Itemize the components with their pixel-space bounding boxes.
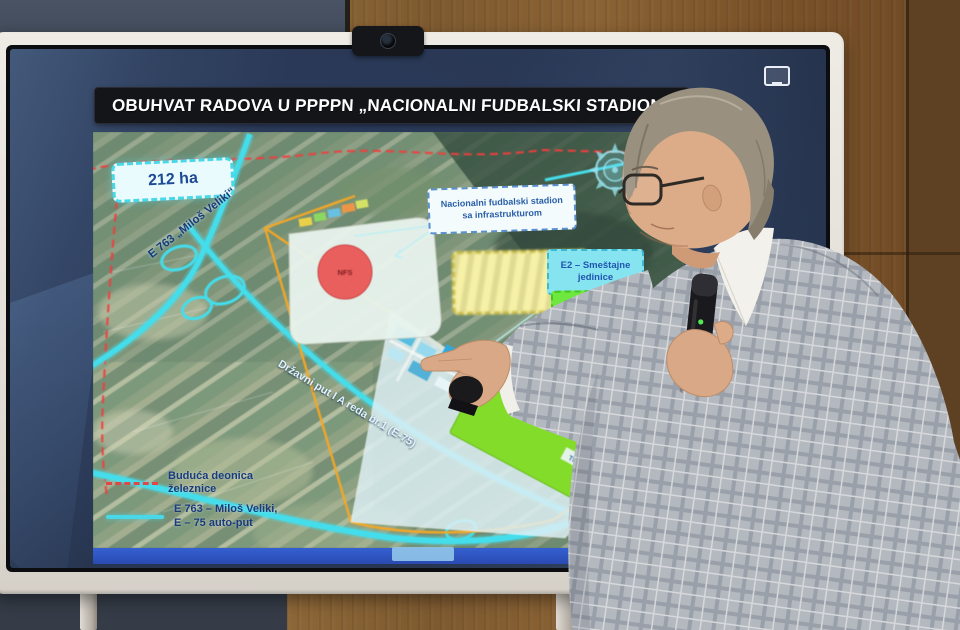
- legend-railway-text: Buduća deonica železnice: [168, 470, 253, 496]
- compass-icon: [588, 143, 642, 197]
- wood-seam: [838, 470, 960, 472]
- legend-railway-sample: [106, 482, 158, 485]
- map-legend: Buduća deonica železnice E 763 – Miloš V…: [106, 470, 321, 537]
- cast-icon: [764, 66, 790, 86]
- e2-label-box: E2 – Smeštajne jedinice: [547, 249, 644, 295]
- legend-highway-text: E 763 – Miloš Veliki, E – 75 auto-put: [174, 503, 277, 529]
- watermark-tab: [392, 547, 454, 561]
- camera-lens-icon: [380, 33, 396, 49]
- e1-label-box: E1 – Sajam EX: [551, 289, 645, 318]
- tv-leg-left: [80, 590, 97, 630]
- wood-seam: [838, 252, 960, 255]
- title-text: OBUHVAT RADOVA U PPPPN „NACIONALNI FUDBA…: [111, 96, 671, 116]
- stadium-label-box: Nacionalni fudbalski stadion sa infrastr…: [427, 183, 577, 234]
- conference-camera: [352, 26, 424, 56]
- legend-highway-sample: [106, 515, 164, 519]
- title-banner: OBUHVAT RADOVA U PPPPN „NACIONALNI FUDBA…: [95, 88, 688, 123]
- nfs-marker: NFS: [338, 268, 353, 277]
- stadium-plot: NFS: [289, 218, 441, 344]
- scene: OBUHVAT RADOVA U PPPPN „NACIONALNI FUDBA…: [0, 0, 960, 630]
- map-bottom-strip: [93, 548, 684, 564]
- wood-panel-right: [906, 0, 960, 630]
